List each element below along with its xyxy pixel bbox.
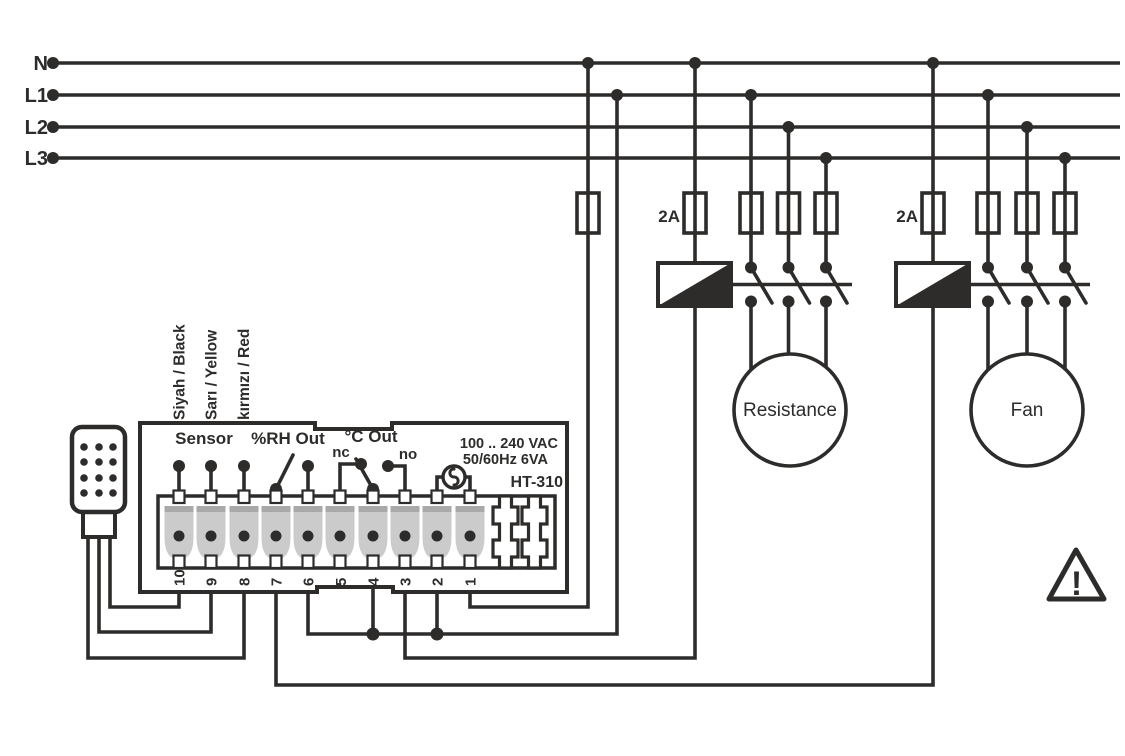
fan-load: Fan bbox=[971, 354, 1083, 466]
junction-dot bbox=[783, 121, 795, 133]
resistance-load-label: Resistance bbox=[743, 400, 837, 421]
terminal-number: 9 bbox=[204, 578, 221, 586]
wire-red-label: kırmızı / Red bbox=[236, 329, 253, 420]
line-start-dot bbox=[47, 121, 59, 133]
model-label: HT-310 bbox=[511, 474, 564, 491]
terminal-number: 8 bbox=[237, 578, 254, 586]
line-start-dot bbox=[47, 89, 59, 101]
fan-coil-fuse-label: 2A bbox=[896, 207, 918, 226]
junction-dot bbox=[689, 57, 701, 69]
warning-exclamation: ! bbox=[1071, 565, 1082, 603]
rh-out-label: %RH Out bbox=[251, 429, 325, 448]
resistance-coil-fuse-label: 2A bbox=[658, 207, 680, 226]
wire-yellow-label: Sarı / Yellow bbox=[204, 329, 221, 420]
terminal-block bbox=[158, 491, 555, 569]
fan-branch: 2A Fan bbox=[896, 57, 1090, 466]
sensor-head bbox=[72, 427, 125, 512]
controller-wiring bbox=[276, 57, 933, 685]
sensor-label: Sensor bbox=[175, 429, 233, 448]
power-line-l3-label: L3 bbox=[25, 148, 48, 170]
terminal-number: 1 bbox=[463, 578, 480, 586]
junction-dot bbox=[611, 89, 623, 101]
power-line-l2-label: L2 bbox=[25, 117, 48, 139]
fan-contactor-coil bbox=[896, 263, 969, 306]
junction-dot bbox=[820, 152, 832, 164]
terminal-number: 2 bbox=[430, 578, 447, 586]
rh-contact-fixed bbox=[302, 460, 314, 472]
terminal-number: 3 bbox=[398, 578, 415, 586]
no-label: no bbox=[399, 446, 417, 463]
junction-dot bbox=[982, 89, 994, 101]
fan-load-label: Fan bbox=[1011, 400, 1044, 421]
no-contact bbox=[382, 460, 394, 472]
line-start-dot bbox=[47, 152, 59, 164]
junction-dot bbox=[927, 57, 939, 69]
wiring-diagram: N L1 L2 L3 2A bbox=[0, 0, 1125, 756]
c-out-label: °C Out bbox=[344, 427, 397, 446]
power-lines: N L1 L2 L3 bbox=[25, 53, 1120, 170]
junction-dot bbox=[1059, 152, 1071, 164]
terminal-number: 7 bbox=[269, 578, 286, 586]
rating-line1: 100 .. 240 VAC bbox=[460, 436, 559, 452]
junction-dot bbox=[367, 628, 380, 641]
junction-dot bbox=[1021, 121, 1033, 133]
power-line-n-label: N bbox=[34, 53, 48, 75]
terminal-number: 6 bbox=[301, 578, 318, 586]
warning-icon: ! bbox=[1049, 550, 1104, 603]
resistance-branch: 2A Resistance bbox=[658, 57, 852, 466]
wire-black-label: Siyah / Black bbox=[172, 324, 189, 420]
sensor-cable-labels: Siyah / Black Sarı / Yellow kırmızı / Re… bbox=[172, 324, 254, 420]
resistance-load: Resistance bbox=[734, 354, 846, 466]
junction-dot bbox=[745, 89, 757, 101]
resistance-contactor-coil bbox=[658, 263, 731, 306]
junction-dot bbox=[582, 57, 594, 69]
line-start-dot bbox=[47, 57, 59, 69]
junction-dot bbox=[431, 628, 444, 641]
terminal-number: 4 bbox=[366, 577, 383, 586]
terminal-number: 10 bbox=[172, 569, 189, 586]
terminal-number: 5 bbox=[333, 578, 350, 586]
power-line-l1-label: L1 bbox=[25, 85, 48, 107]
controller: Sensor %RH Out °C Out nc no 100 .. 240 V… bbox=[140, 423, 567, 592]
nc-label: nc bbox=[332, 444, 350, 461]
rating-line2: 50/60Hz 6VA bbox=[463, 452, 549, 468]
